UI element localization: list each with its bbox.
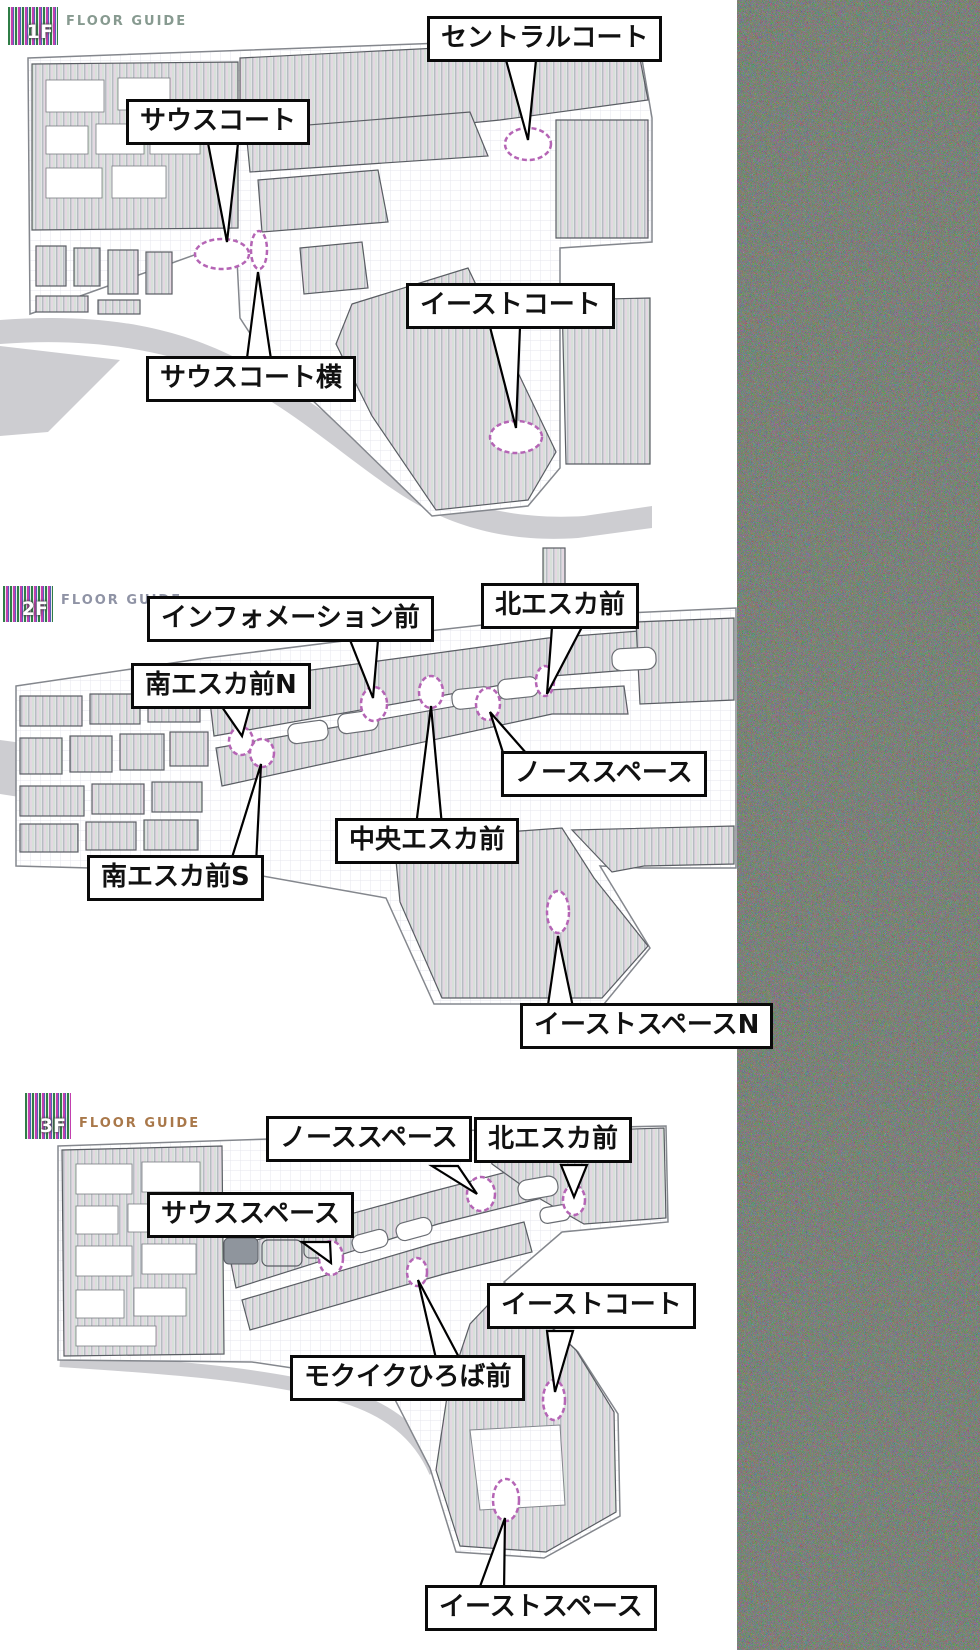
marker-north-space-3f xyxy=(467,1177,495,1211)
floor-badge-label-2f: 2F xyxy=(22,598,48,620)
noise-region xyxy=(737,0,980,1650)
floor-guide-page: 1F FLOOR GUIDE 2F FLOOR GUIDE 3F FLOOR G… xyxy=(0,0,980,1650)
floor-badge-label-3f: 3F xyxy=(40,1115,66,1137)
floor-guide-text-3f: FLOOR GUIDE xyxy=(79,1116,200,1131)
floor-header-1f: 1F FLOOR GUIDE xyxy=(8,7,187,45)
floor-badge-3f: 3F xyxy=(25,1093,71,1139)
callout-east-space: イーストスペース xyxy=(425,1585,657,1631)
marker-central-esca-front xyxy=(419,676,443,708)
floor-badge-label-1f: 1F xyxy=(27,21,53,43)
floor-header-3f: 3F FLOOR GUIDE xyxy=(25,1093,200,1139)
road-wedge-1f xyxy=(0,346,120,436)
marker-mokuiku-hiroba-front xyxy=(407,1258,427,1286)
marker-east-space-n xyxy=(547,891,569,933)
callout-north-space-3f: ノーススペース xyxy=(266,1116,472,1162)
callout-north-space-2f: ノーススペース xyxy=(501,751,707,797)
callout-south-esca-front-s: 南エスカ前S xyxy=(87,855,264,901)
floor-badge-2f: 2F xyxy=(3,586,53,622)
marker-east-space xyxy=(493,1479,519,1521)
callout-central-esca-front: 中央エスカ前 xyxy=(335,818,519,864)
callout-south-esca-front-n: 南エスカ前N xyxy=(131,663,311,709)
marker-south-esca-front-s xyxy=(250,739,274,767)
callout-east-space-n: イーストスペースN xyxy=(520,1003,773,1049)
callout-north-esca-front-2f: 北エスカ前 xyxy=(481,583,639,629)
kiosk-dark-3f xyxy=(224,1238,258,1264)
floor-badge-1f: 1F xyxy=(8,7,58,45)
callout-east-court-3f: イーストコート xyxy=(487,1283,696,1329)
callout-south-court-side: サウスコート横 xyxy=(146,356,356,402)
floor-guide-text-1f: FLOOR GUIDE xyxy=(66,14,187,29)
callout-central-court: セントラルコート xyxy=(427,16,662,62)
callout-north-esca-front-3f: 北エスカ前 xyxy=(474,1117,632,1163)
marker-south-court xyxy=(195,239,249,269)
callout-east-court-1f: イーストコート xyxy=(406,283,615,329)
floor-map-2f xyxy=(0,608,736,1012)
callout-mokuiku-hiroba-front: モクイクひろば前 xyxy=(290,1355,525,1401)
callout-south-court: サウスコート xyxy=(126,99,310,145)
marker-north-space-2f xyxy=(476,688,500,720)
marker-south-court-side xyxy=(251,231,267,269)
callout-information-front: インフォメーション前 xyxy=(147,596,434,642)
callout-south-space: サウススペース xyxy=(147,1192,354,1238)
